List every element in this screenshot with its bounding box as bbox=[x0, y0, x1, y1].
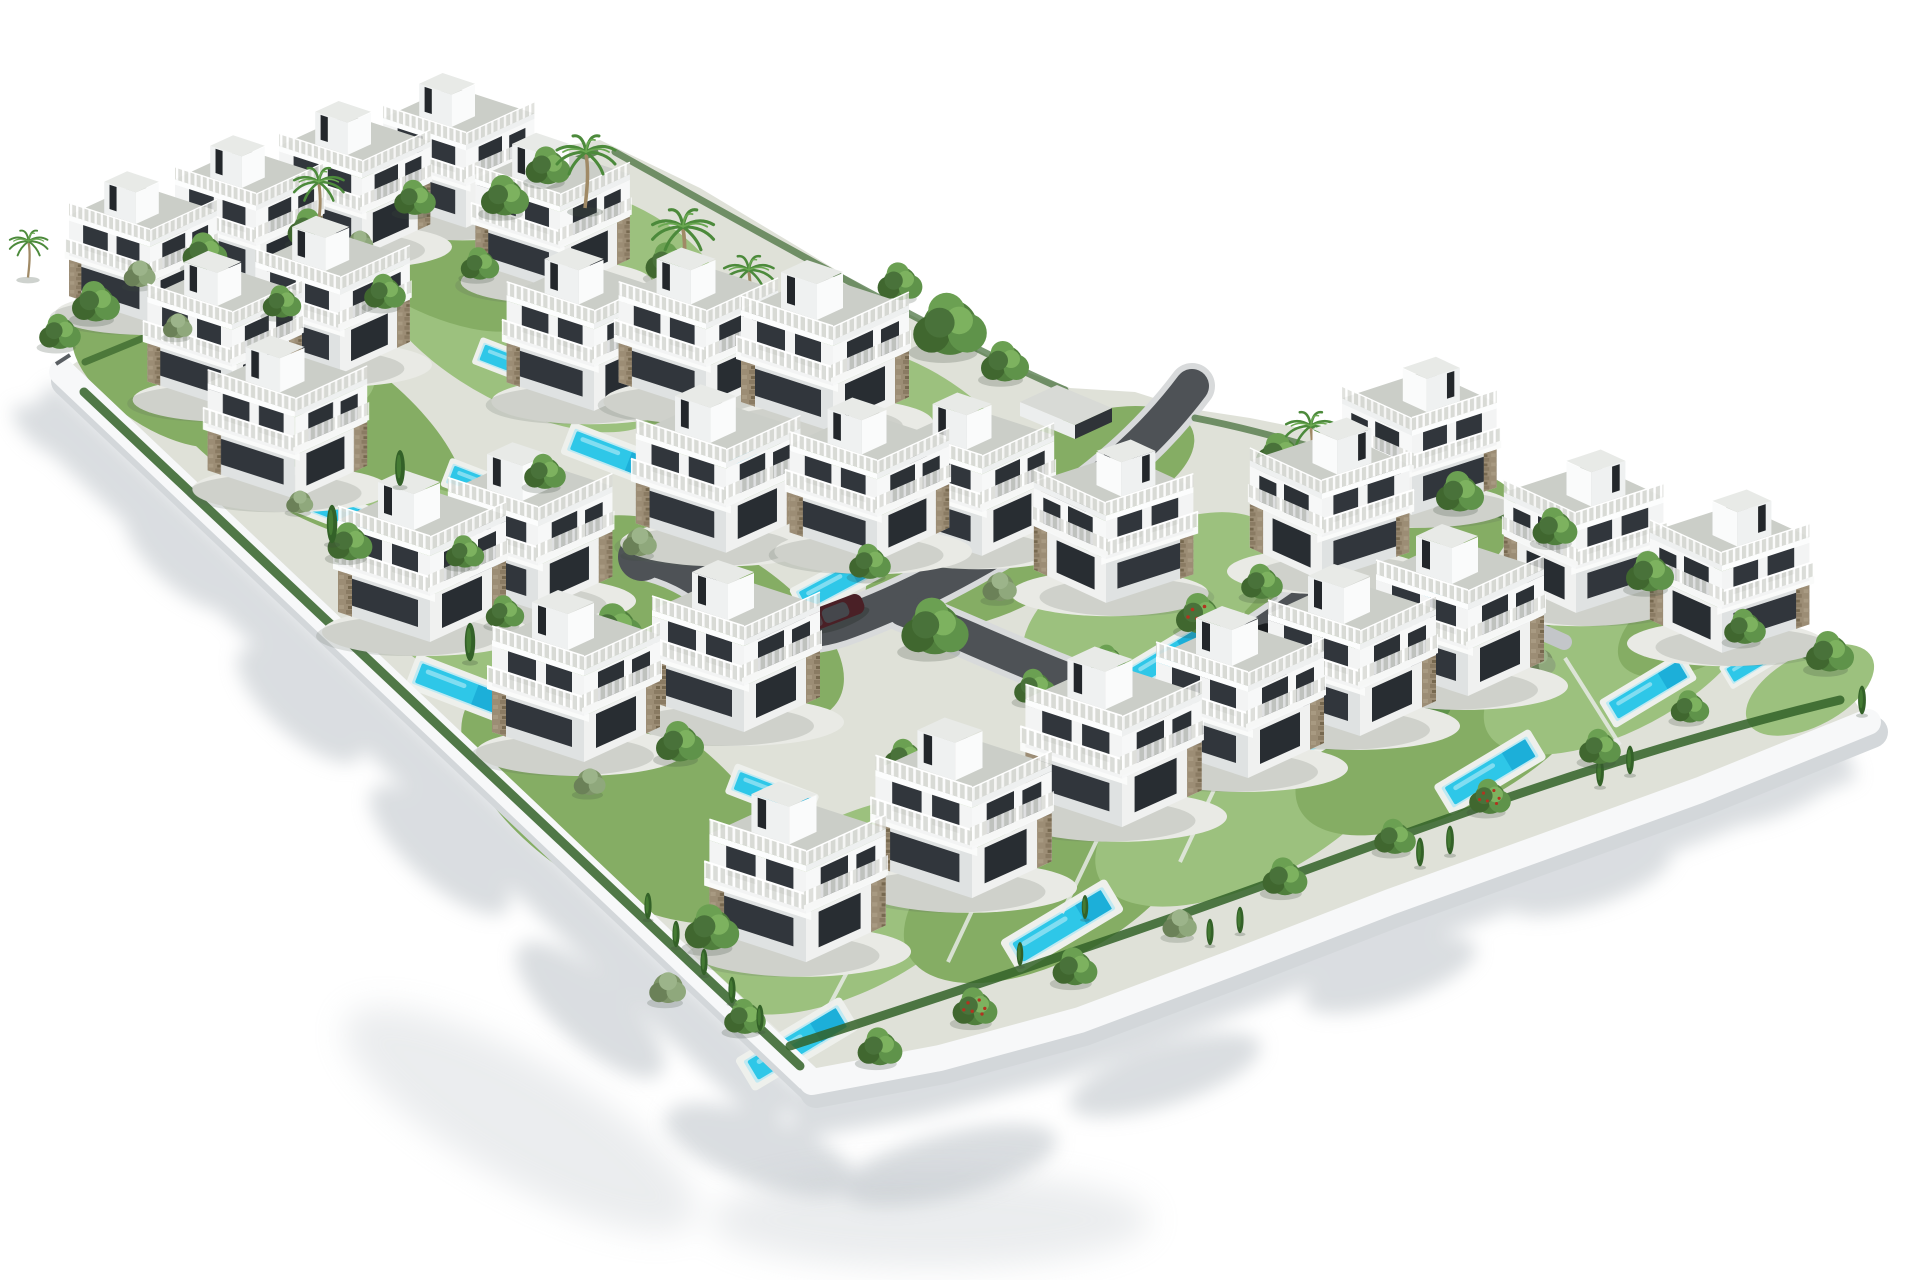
render-canvas: Aerial 3D architectural rendering of a w… bbox=[0, 0, 1920, 1280]
palm-tree bbox=[10, 231, 48, 284]
shadow-haze bbox=[710, 1172, 1150, 1268]
villa-development-render: Aerial 3D architectural rendering of a w… bbox=[0, 0, 1920, 1280]
tree bbox=[978, 341, 1029, 387]
tree bbox=[909, 293, 987, 363]
